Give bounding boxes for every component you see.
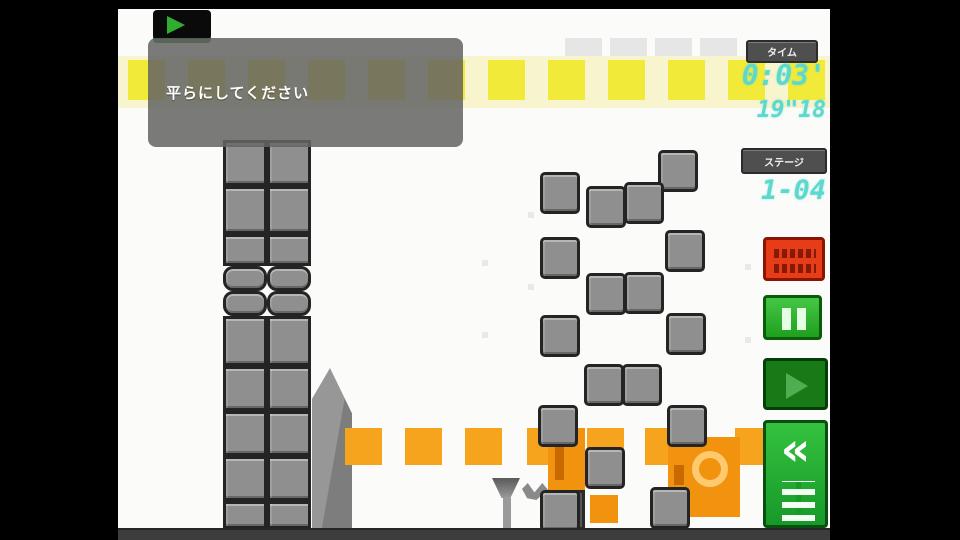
hint-square [655, 38, 692, 56]
time-main-value: 0:03' [666, 59, 826, 92]
yellow-square[interactable] [608, 60, 645, 100]
yellow-square[interactable] [488, 60, 525, 100]
tower-block[interactable] [223, 234, 267, 266]
tower-block[interactable] [223, 291, 267, 316]
ladder-block[interactable] [540, 315, 580, 357]
ladder-block[interactable] [540, 490, 580, 532]
tower-block[interactable] [223, 411, 267, 456]
ladder-block[interactable] [667, 405, 707, 447]
pin-stand-stem [503, 498, 511, 531]
ladder-block[interactable] [540, 172, 580, 214]
letterbox-frame: 平らにしてください タイム 0:03' 19"18 ステージ 1-04 « [0, 0, 960, 540]
instruction-tooltip: 平らにしてください [148, 38, 463, 147]
play-icon [786, 373, 808, 399]
tower-block[interactable] [267, 501, 311, 529]
game-viewport: 平らにしてください タイム 0:03' 19"18 ステージ 1-04 « [118, 9, 830, 540]
tower-block[interactable] [267, 366, 311, 411]
grid-dot [528, 212, 534, 218]
grid-dot [745, 337, 751, 343]
orange-square[interactable] [465, 428, 502, 465]
time-sub-value: 19"18 [666, 97, 826, 123]
hint-square [565, 38, 602, 56]
grid-dot [528, 284, 534, 290]
tower-block[interactable] [267, 186, 311, 234]
tower-block[interactable] [267, 291, 311, 316]
rewind-kanji-icon [782, 481, 815, 521]
ladder-block[interactable] [665, 230, 705, 272]
yellow-square[interactable] [548, 60, 585, 100]
orange-square[interactable] [345, 428, 382, 465]
pause-icon [782, 308, 791, 330]
tower-block[interactable] [267, 316, 311, 366]
ladder-block[interactable] [540, 237, 580, 279]
stage-label-badge: ステージ [741, 148, 827, 174]
ladder-block[interactable] [585, 447, 625, 489]
tower-block[interactable] [267, 266, 311, 291]
tower-block[interactable] [223, 366, 267, 411]
orange-small-block[interactable] [590, 495, 618, 523]
stage-value: 1-04 [666, 175, 826, 206]
tower-block[interactable] [223, 316, 267, 366]
ladder-block[interactable] [650, 487, 690, 529]
reset-button[interactable] [763, 237, 825, 281]
play-icon [167, 16, 185, 34]
tower-block[interactable] [223, 456, 267, 501]
ladder-block[interactable] [586, 273, 626, 315]
orange-square[interactable] [405, 428, 442, 465]
grid-dot [482, 332, 488, 338]
ground-strip [118, 528, 830, 540]
tower-block[interactable] [223, 501, 267, 529]
grid-dot [482, 260, 488, 266]
ladder-block[interactable] [622, 364, 662, 406]
grid-dot [745, 264, 751, 270]
instruction-text: 平らにしてください [166, 82, 309, 103]
pause-icon [797, 308, 806, 330]
ladder-block[interactable] [584, 364, 624, 406]
play-button[interactable] [763, 358, 828, 410]
hint-square [700, 38, 737, 56]
rewind-chevron-icon: « [766, 423, 825, 475]
tower-block[interactable] [223, 186, 267, 234]
rewind-button[interactable]: « [763, 420, 828, 528]
ladder-block[interactable] [586, 186, 626, 228]
tower-block[interactable] [267, 456, 311, 501]
pin-stand-top [492, 478, 520, 498]
tower-block[interactable] [223, 266, 267, 291]
ladder-block[interactable] [624, 272, 664, 314]
hint-square [610, 38, 647, 56]
stage-label: ステージ [764, 154, 804, 169]
ladder-block[interactable] [624, 182, 664, 224]
time-label: タイム [767, 44, 797, 59]
tower-block[interactable] [267, 234, 311, 266]
ladder-block[interactable] [538, 405, 578, 447]
pause-button[interactable] [763, 295, 822, 340]
ladder-block[interactable] [666, 313, 706, 355]
tower-block[interactable] [267, 411, 311, 456]
